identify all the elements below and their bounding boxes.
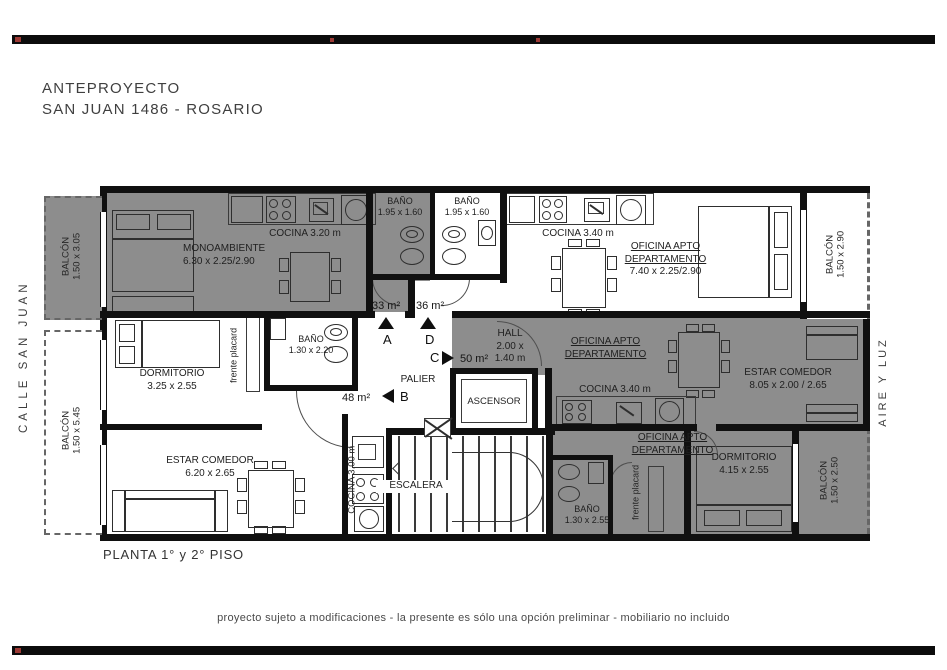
room-name: OFICINA APTO bbox=[630, 432, 715, 445]
room-size: 1.30 x 2.20 bbox=[276, 345, 346, 356]
toilet-bowl bbox=[448, 230, 460, 238]
ink-mark bbox=[15, 37, 21, 42]
bano-b-label: BAÑO 1.30 x 2.20 bbox=[276, 334, 346, 357]
blanket-line bbox=[112, 238, 194, 240]
room-size: 3.25 x 2.55 bbox=[126, 381, 218, 394]
bano-a-label: BAÑO 1.95 x 1.60 bbox=[370, 196, 430, 219]
cooktop-ring bbox=[359, 509, 379, 529]
burner-icon bbox=[282, 199, 291, 208]
burner-icon bbox=[565, 403, 573, 411]
pillow-icon bbox=[119, 346, 135, 364]
room-name: BAÑO bbox=[370, 196, 430, 207]
placard-outline bbox=[246, 316, 260, 392]
room-size: 1.50 x 3.05 bbox=[72, 221, 83, 291]
blanket-line bbox=[696, 504, 792, 506]
room-name: OFICINA APTO bbox=[618, 241, 713, 254]
sofa-arm-line bbox=[124, 490, 126, 532]
monoambiente-label: MONOAMBIENTE 6.30 x 2.25/2.90 bbox=[183, 243, 303, 268]
room-name: BALCÓN bbox=[61, 395, 72, 465]
entry-arrow-a bbox=[378, 317, 394, 329]
wall bbox=[545, 424, 697, 431]
blanket-line bbox=[141, 320, 143, 368]
bottom-border-bar bbox=[12, 646, 935, 655]
wall bbox=[100, 424, 262, 430]
wall bbox=[264, 385, 358, 391]
chair-icon bbox=[721, 360, 730, 373]
room-name: MONOAMBIENTE bbox=[183, 243, 303, 256]
fridge-icon bbox=[509, 196, 535, 223]
room-name: BALCÓN bbox=[825, 219, 836, 289]
chair-icon bbox=[686, 324, 699, 332]
balcony-bottom-right-label: BALCÓN 1.50 x 2.50 bbox=[819, 445, 842, 515]
unit-c-area: 50 m² bbox=[460, 353, 488, 365]
burner-icon bbox=[542, 211, 551, 220]
burner-icon bbox=[578, 413, 586, 421]
room-size: 6.30 x 2.25/2.90 bbox=[183, 256, 303, 269]
escalera-label: ESCALERA bbox=[376, 480, 456, 493]
chair-icon bbox=[702, 390, 715, 398]
unit-d-letter: D bbox=[425, 332, 434, 347]
unit-d-area: 36 m² bbox=[416, 300, 444, 312]
chair-icon bbox=[607, 256, 617, 270]
cooktop-ring bbox=[345, 199, 367, 221]
cocina-c-label: COCINA 3.40 m bbox=[570, 384, 660, 397]
pillow-icon bbox=[116, 214, 150, 230]
estar-c-label: ESTAR COMEDOR 8.05 x 2.00 / 2.65 bbox=[738, 367, 838, 392]
wall bbox=[545, 368, 552, 432]
room-name: ESTAR COMEDOR bbox=[150, 455, 270, 468]
unit-a-area: 33 m² bbox=[372, 300, 400, 312]
unit-a-letter: A bbox=[383, 332, 392, 347]
wall bbox=[500, 186, 507, 283]
cocina-d-label: COCINA 3.40 m bbox=[518, 228, 638, 241]
bano-d-label: BAÑO 1.95 x 1.60 bbox=[433, 196, 501, 219]
room-size: 1.50 x 2.90 bbox=[836, 219, 847, 289]
burner-icon bbox=[554, 211, 563, 220]
chair-icon bbox=[279, 280, 289, 294]
burner-icon bbox=[370, 492, 379, 501]
oficina-d-label: OFICINA APTO DEPARTAMENTO 7.40 x 2.25/2.… bbox=[618, 241, 713, 279]
sink-bowl bbox=[358, 444, 376, 460]
sofa-arm-line bbox=[214, 490, 216, 532]
burner-icon bbox=[565, 413, 573, 421]
window bbox=[792, 444, 799, 522]
chair-icon bbox=[551, 278, 561, 292]
cooktop-ring bbox=[659, 401, 680, 422]
burner-icon bbox=[269, 199, 278, 208]
dormitorio-c-label: DORMITORIO 4.15 x 2.55 bbox=[698, 452, 790, 477]
pillow-icon bbox=[746, 510, 782, 526]
floor-plan-page: ANTEPROYECTO SAN JUAN 1486 - ROSARIO PLA… bbox=[0, 0, 947, 670]
room-size: 1.50 x 5.45 bbox=[72, 395, 83, 465]
table-icon bbox=[678, 332, 720, 388]
toilet-bowl bbox=[406, 230, 418, 238]
washbasin-icon bbox=[588, 462, 604, 484]
balcony-top-right-label: BALCÓN 1.50 x 2.90 bbox=[825, 219, 848, 289]
wall bbox=[452, 311, 870, 318]
balcony-top-left-label: BALCÓN 1.50 x 3.05 bbox=[61, 221, 84, 291]
chair-icon bbox=[668, 360, 677, 373]
street-label: CALLE SAN JUAN bbox=[18, 283, 32, 433]
wall bbox=[553, 455, 613, 460]
room-size: 6.20 x 2.65 bbox=[150, 468, 270, 481]
entry-arrow-d bbox=[420, 317, 436, 329]
top-border-bar bbox=[12, 35, 935, 44]
chair-icon bbox=[607, 278, 617, 292]
room-size: 2.00 x bbox=[480, 341, 540, 354]
chair-icon bbox=[254, 526, 268, 534]
chair-icon bbox=[237, 500, 247, 514]
stair-return-outline bbox=[452, 452, 544, 522]
room-name: BAÑO bbox=[556, 504, 618, 515]
pillow-icon bbox=[704, 510, 740, 526]
media-unit-line bbox=[806, 412, 858, 414]
estar-b-label: ESTAR COMEDOR 6.20 x 2.65 bbox=[150, 455, 270, 480]
dormitorio-b-label: DORMITORIO 3.25 x 2.55 bbox=[126, 368, 218, 393]
light-air-label: AIRE Y LUZ bbox=[877, 322, 891, 442]
chair-icon bbox=[702, 324, 715, 332]
sofa-back-line bbox=[124, 498, 216, 500]
room-name: DEPARTAMENTO bbox=[563, 349, 648, 362]
room-name: BALCÓN bbox=[61, 221, 72, 291]
room-name: DEPARTAMENTO bbox=[618, 254, 713, 267]
elevator-label: ASCENSOR bbox=[454, 396, 534, 408]
cocina-b-label: COCINA 3.00 m bbox=[346, 432, 357, 528]
room-size: 8.05 x 2.00 / 2.65 bbox=[738, 380, 838, 393]
room-name: BAÑO bbox=[433, 196, 501, 207]
entry-arrow-c bbox=[442, 351, 454, 365]
unit-b-area: 48 m² bbox=[342, 392, 370, 404]
room-size: 1.30 x 2.55 bbox=[556, 515, 618, 526]
toilet-icon bbox=[558, 464, 580, 480]
pillow-icon bbox=[157, 214, 191, 230]
cooktop-ring bbox=[620, 199, 642, 221]
room-size: 1.95 x 1.60 bbox=[433, 207, 501, 218]
placard-b-label: frente placard bbox=[229, 315, 240, 395]
bidet-icon bbox=[442, 248, 466, 265]
bidet-icon bbox=[558, 486, 580, 502]
hall-label: HALL 2.00 x 1.40 m bbox=[480, 328, 540, 366]
wall bbox=[546, 428, 553, 541]
chair-icon bbox=[237, 478, 247, 492]
chair-icon bbox=[295, 500, 305, 514]
window bbox=[100, 445, 107, 525]
placard-outline bbox=[648, 466, 664, 532]
chair-icon bbox=[551, 256, 561, 270]
ink-mark bbox=[536, 38, 540, 42]
chair-icon bbox=[721, 340, 730, 353]
blanket-line bbox=[768, 206, 770, 298]
ink-mark bbox=[15, 648, 21, 653]
placard-c-label: frente placard bbox=[631, 452, 642, 532]
window bbox=[800, 210, 807, 302]
balcony-bottom-left-label: BALCÓN 1.50 x 5.45 bbox=[61, 395, 84, 465]
unit-b-letter: B bbox=[400, 389, 409, 404]
bano-c-label: BAÑO 1.30 x 2.55 bbox=[556, 504, 618, 527]
burner-icon bbox=[282, 211, 291, 220]
oficina-c-label: OFICINA APTO DEPARTAMENTO bbox=[563, 336, 648, 361]
project-address: SAN JUAN 1486 - ROSARIO bbox=[42, 101, 264, 118]
unit-c-letter: C bbox=[430, 350, 439, 365]
room-size: 4.15 x 2.55 bbox=[698, 465, 790, 478]
chair-icon bbox=[331, 280, 341, 294]
ink-mark bbox=[330, 38, 334, 42]
project-title: ANTEPROYECTO bbox=[42, 80, 180, 97]
sofa-icon bbox=[806, 326, 858, 360]
wall bbox=[264, 311, 270, 391]
chair-icon bbox=[272, 461, 286, 469]
room-name: BAÑO bbox=[276, 334, 346, 345]
sofa-back-line bbox=[806, 334, 858, 336]
chair-icon bbox=[668, 340, 677, 353]
table-icon bbox=[562, 248, 606, 308]
chair-icon bbox=[331, 258, 341, 272]
fridge-icon bbox=[231, 196, 263, 223]
wall bbox=[352, 311, 358, 391]
wall bbox=[366, 274, 507, 280]
window bbox=[100, 340, 107, 410]
burner-icon bbox=[542, 199, 551, 208]
room-name: ESTAR COMEDOR bbox=[738, 367, 838, 380]
chair-icon bbox=[295, 478, 305, 492]
room-size: 1.40 m bbox=[480, 353, 540, 366]
room-size: 7.40 x 2.25/2.90 bbox=[618, 266, 713, 279]
room-size: 1.50 x 2.50 bbox=[830, 445, 841, 515]
washbasin-bowl bbox=[481, 226, 493, 240]
room-name: DORMITORIO bbox=[126, 368, 218, 381]
palier-label: PALIER bbox=[394, 374, 442, 387]
room-name: DORMITORIO bbox=[698, 452, 790, 465]
pillow-icon bbox=[774, 212, 788, 248]
burner-icon bbox=[578, 403, 586, 411]
dresser-icon bbox=[112, 296, 194, 312]
window bbox=[100, 212, 107, 307]
wall bbox=[608, 455, 613, 541]
room-name: BALCÓN bbox=[819, 445, 830, 515]
burner-icon bbox=[554, 199, 563, 208]
bidet-icon bbox=[400, 248, 424, 265]
plan-caption: PLANTA 1° y 2° PISO bbox=[103, 547, 244, 562]
footer-note: proyecto sujeto a modificaciones - la pr… bbox=[0, 612, 947, 624]
wall bbox=[408, 276, 415, 318]
pillow-icon bbox=[119, 324, 135, 342]
pillow-icon bbox=[774, 254, 788, 290]
room-name: HALL bbox=[480, 328, 540, 341]
burner-icon bbox=[269, 211, 278, 220]
room-size: 1.95 x 1.60 bbox=[370, 207, 430, 218]
room-name: OFICINA APTO bbox=[563, 336, 648, 349]
chair-icon bbox=[272, 526, 286, 534]
entry-arrow-b bbox=[382, 389, 394, 403]
sofa-icon bbox=[112, 490, 228, 532]
cocina-a-label: COCINA 3.20 m bbox=[240, 228, 370, 241]
